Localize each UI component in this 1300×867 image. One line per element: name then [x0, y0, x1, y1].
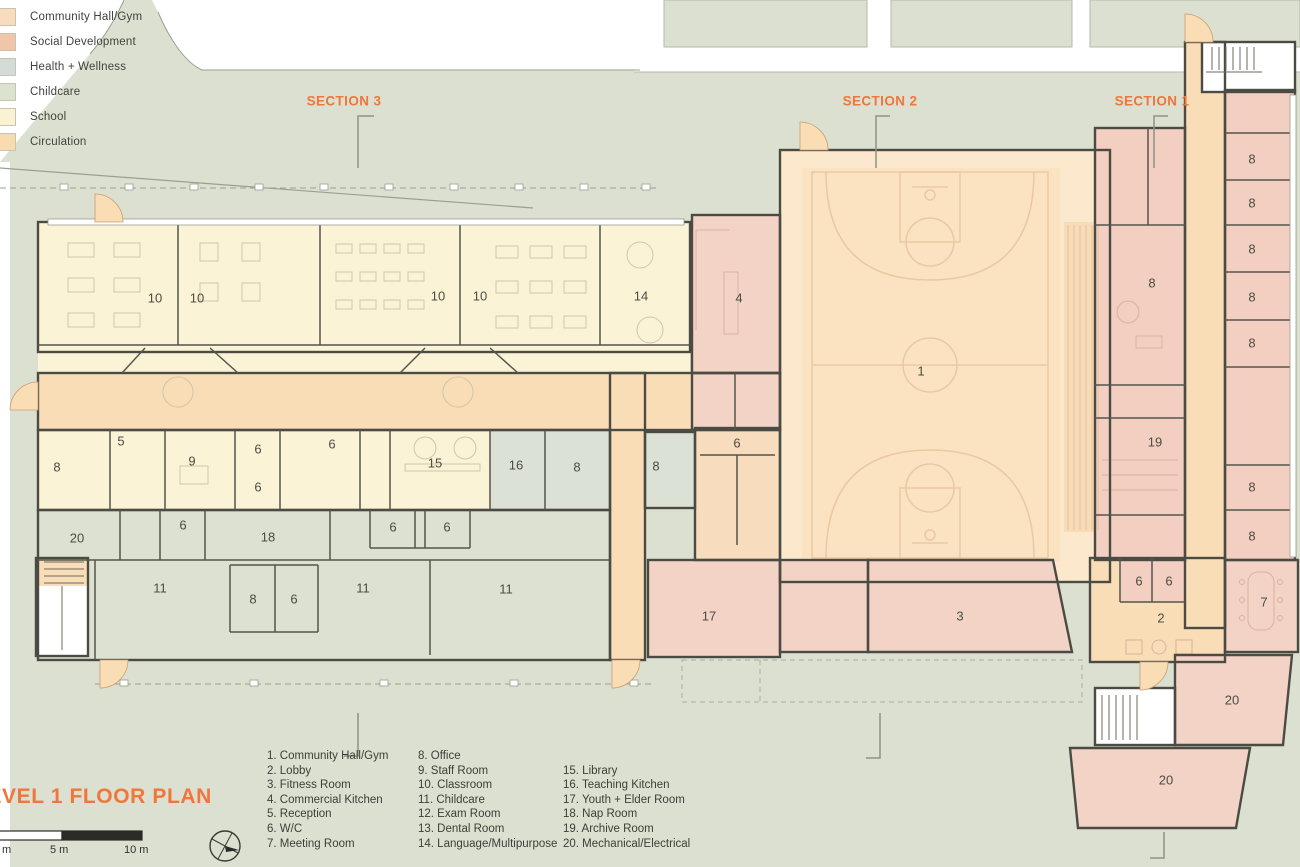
room-number-label: 14	[634, 289, 648, 304]
room-number-label: 6	[254, 480, 261, 495]
room-legend-entry: 1. Community Hall/Gym	[267, 749, 388, 764]
room-number-label: 8	[1248, 152, 1255, 167]
room-number-label: 9	[188, 454, 195, 469]
room-legend-entry: 4. Commercial Kitchen	[267, 793, 388, 808]
section-label: SECTION 1	[1115, 94, 1190, 109]
room-number-label: 11	[499, 582, 513, 597]
room-legend-entry: 17. Youth + Elder Room	[563, 793, 690, 808]
room-number-label: 8	[1148, 276, 1155, 291]
room-legend-column-2: 8. Office9. Staff Room10. Classroom11. C…	[418, 749, 557, 851]
legend-swatch	[0, 58, 16, 76]
room-number-label: 5	[117, 434, 124, 449]
page-title: LEVEL 1 FLOOR PLAN	[0, 785, 212, 809]
room-number-label: 6	[254, 442, 261, 457]
room-number-label: 20	[70, 531, 84, 546]
floor-plan-sheet: Community Hall/GymSocial DevelopmentHeal…	[0, 0, 1300, 867]
legend-swatch	[0, 33, 16, 51]
legend-item-label: Childcare	[30, 86, 80, 98]
scale-label: m	[2, 844, 11, 856]
section-label: SECTION 3	[307, 94, 382, 109]
room-legend-entry: 5. Reception	[267, 807, 388, 822]
room-number-label: 8	[1248, 529, 1255, 544]
room-number-label: 6	[1135, 574, 1142, 589]
room-number-label: 11	[356, 581, 370, 596]
room-number-label: 8	[249, 592, 256, 607]
floor-plan-drawing	[0, 0, 1300, 867]
room-legend-entry: 13. Dental Room	[418, 822, 557, 837]
room-number-label: 8	[53, 460, 60, 475]
room-number-label: 6	[328, 437, 335, 452]
scale-label: 5 m	[50, 844, 68, 856]
room-legend-entry: 2. Lobby	[267, 764, 388, 779]
room-number-label: 10	[148, 291, 162, 306]
legend-item: Health + Wellness	[0, 54, 142, 79]
legend-swatch	[0, 108, 16, 126]
legend-item-label: Social Development	[30, 36, 136, 48]
room-number-label: 6	[179, 518, 186, 533]
room-legend-entry: 10. Classroom	[418, 778, 557, 793]
room-number-label: 20	[1159, 773, 1173, 788]
legend-item-label: Circulation	[30, 136, 87, 148]
room-number-label: 6	[443, 520, 450, 535]
room-number-label: 10	[190, 291, 204, 306]
room-legend-entry: 8. Office	[418, 749, 557, 764]
room-number-label: 8	[652, 459, 659, 474]
room-number-label: 7	[1260, 595, 1267, 610]
category-legend: Community Hall/GymSocial DevelopmentHeal…	[0, 4, 142, 154]
legend-item: Community Hall/Gym	[0, 4, 142, 29]
scale-bar	[0, 831, 142, 840]
room-number-label: 6	[1165, 574, 1172, 589]
room-number-label: 19	[1148, 435, 1162, 450]
room-legend-entry: 7. Meeting Room	[267, 837, 388, 852]
room-number-label: 15	[428, 456, 442, 471]
legend-item: Childcare	[0, 79, 142, 104]
room-legend-column-1: 1. Community Hall/Gym2. Lobby3. Fitness …	[267, 749, 388, 851]
room-legend-column-3: 15. Library16. Teaching Kitchen17. Youth…	[563, 749, 690, 851]
room-number-label: 8	[1248, 336, 1255, 351]
room-number-label: 6	[733, 436, 740, 451]
room-number-label: 1	[917, 364, 924, 379]
room-number-label: 8	[1248, 290, 1255, 305]
room-legend-entry: 12. Exam Room	[418, 807, 557, 822]
room-legend-entry: 3. Fitness Room	[267, 778, 388, 793]
room-legend-entry: 6. W/C	[267, 822, 388, 837]
room-number-label: 4	[735, 291, 742, 306]
legend-item: Circulation	[0, 129, 142, 154]
legend-item: School	[0, 104, 142, 129]
room-number-label: 17	[702, 609, 716, 624]
section-label: SECTION 2	[843, 94, 918, 109]
room-number-label: 8	[573, 460, 580, 475]
room-legend-entry: 14. Language/Multipurpose	[418, 837, 557, 852]
legend-item: Social Development	[0, 29, 142, 54]
legend-swatch	[0, 8, 16, 26]
scale-label: 10 m	[124, 844, 148, 856]
room-number-label: 8	[1248, 242, 1255, 257]
room-legend-entry: 20. Mechanical/Electrical	[563, 837, 690, 852]
room-number-label: 10	[431, 289, 445, 304]
room-number-label: 20	[1225, 693, 1239, 708]
room-legend-entry: 19. Archive Room	[563, 822, 690, 837]
room-legend-entry: 9. Staff Room	[418, 764, 557, 779]
room-number-label: 3	[956, 609, 963, 624]
room-number-label: 6	[389, 520, 396, 535]
north-arrow-icon	[205, 826, 245, 866]
room-number-label: 18	[261, 530, 275, 545]
room-number-label: 11	[153, 581, 167, 596]
room-number-label: 16	[509, 458, 523, 473]
legend-item-label: Community Hall/Gym	[30, 11, 142, 23]
room-number-label: 8	[1248, 196, 1255, 211]
legend-item-label: School	[30, 111, 66, 123]
room-legend-entry: 15. Library	[563, 764, 690, 779]
room-legend-entry: 11. Childcare	[418, 793, 557, 808]
room-number-label: 8	[1248, 480, 1255, 495]
legend-item-label: Health + Wellness	[30, 61, 126, 73]
room-number-label: 6	[290, 592, 297, 607]
room-number-label: 10	[473, 289, 487, 304]
room-number-label: 2	[1157, 611, 1164, 626]
legend-swatch	[0, 83, 16, 101]
legend-swatch	[0, 133, 16, 151]
room-legend-entry: 18. Nap Room	[563, 807, 690, 822]
room-legend-entry: 16. Teaching Kitchen	[563, 778, 690, 793]
